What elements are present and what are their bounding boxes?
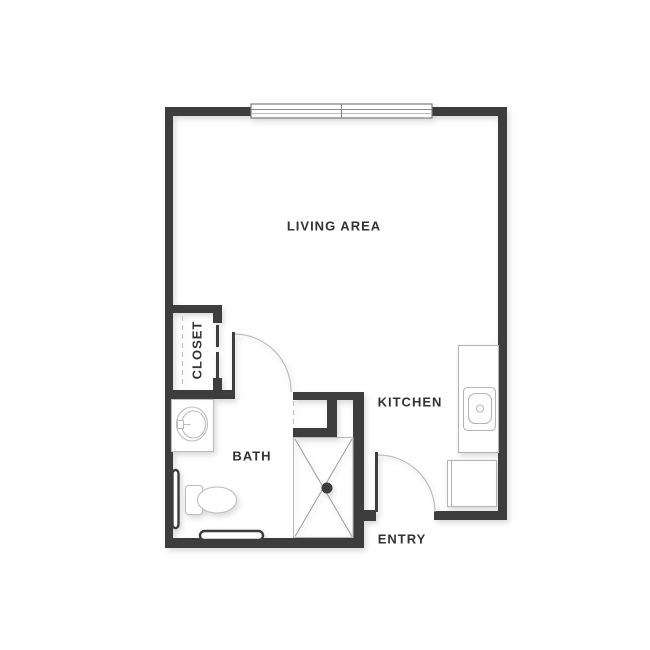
toilet-bowl [198, 487, 237, 513]
wall-entry-right [434, 511, 507, 520]
grab-bar-bottom-wall [200, 531, 263, 540]
wall-top-left [165, 107, 251, 116]
label-entry: ENTRY [378, 532, 427, 547]
entry-door-leaf [375, 452, 378, 512]
closet-door-panel-1 [216, 325, 219, 347]
bath-door-swing-arc [235, 334, 291, 392]
grab-bar-left-wall [173, 470, 179, 528]
wall-plumbing-stub [327, 400, 337, 428]
window [251, 104, 432, 118]
wall-shower-right [353, 392, 364, 548]
label-bath: BATH [232, 449, 271, 464]
wall-shower-mid [293, 428, 337, 437]
kitchen-sink-inner [469, 394, 492, 424]
closet-door-panel-2 [216, 352, 219, 378]
floor-plan: LIVING AREA CLOSET BATH KITCHEN ENTRY [0, 0, 650, 650]
entry-door-swing-arc [378, 455, 435, 512]
kitchen-fixtures [448, 346, 499, 507]
wall-bath-top [165, 390, 235, 399]
wall-entry-jamb-left [364, 510, 376, 521]
label-kitchen: KITCHEN [378, 395, 443, 410]
label-living-area: LIVING AREA [287, 219, 381, 234]
wall-top-right [432, 107, 507, 116]
bath-door-leaf [232, 332, 235, 392]
bath-fixtures [172, 400, 237, 515]
wall-closet-jamb-top [213, 305, 222, 323]
wall-bottom [165, 538, 364, 548]
label-closet: CLOSET [190, 321, 205, 380]
range-appliance [448, 461, 497, 507]
bath-door [232, 332, 291, 392]
entry-door [375, 452, 435, 512]
wall-right [498, 107, 507, 520]
floor-plan-drawing [0, 0, 650, 650]
sink-faucet [178, 421, 184, 429]
shower-drain-dot [322, 483, 333, 494]
shower [294, 401, 354, 538]
